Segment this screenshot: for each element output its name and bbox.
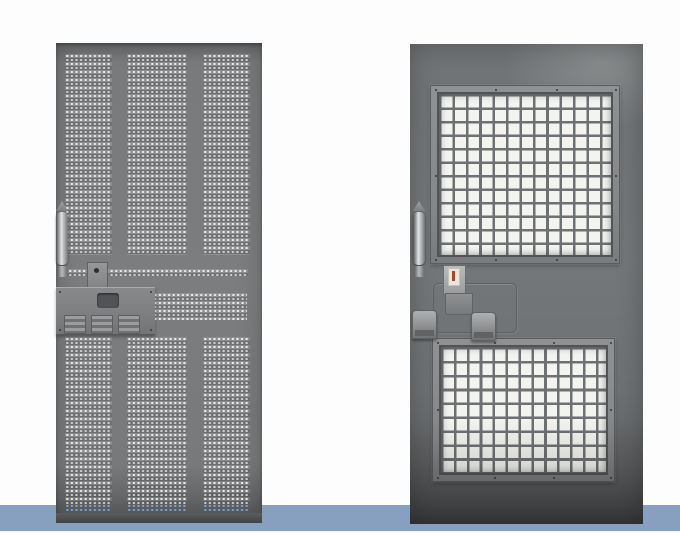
lock-slot-recess bbox=[97, 293, 119, 308]
pull-handle bbox=[56, 201, 72, 281]
perforation-blue-showthrough-right bbox=[203, 504, 250, 513]
door-bottom-edge bbox=[56, 513, 262, 523]
handle-bracket-bottom bbox=[57, 266, 67, 277]
perforated-detention-door bbox=[56, 43, 262, 523]
perforation-blue-showthrough-left bbox=[65, 504, 112, 513]
pull-handle bbox=[413, 201, 429, 281]
handle-grip-bar bbox=[413, 212, 425, 265]
handle-grip-bar bbox=[56, 212, 68, 265]
lock-cover-plate bbox=[56, 287, 155, 335]
spec-label bbox=[448, 268, 460, 286]
perforated-panel-upper-center bbox=[127, 54, 187, 255]
latch-keeper bbox=[118, 315, 140, 334]
perforated-panel-lower-center bbox=[127, 337, 187, 504]
lock-body bbox=[445, 293, 473, 315]
perforation-blue-showthrough-center bbox=[127, 504, 187, 513]
perforated-band-mid-right bbox=[153, 293, 247, 320]
bar-grille-lower bbox=[439, 345, 608, 475]
product-photo-canvas bbox=[0, 0, 680, 534]
handle-bracket-bottom bbox=[414, 266, 424, 277]
plate-screws bbox=[59, 291, 61, 293]
perforated-panel-lower-right bbox=[203, 337, 250, 504]
paddle-latch bbox=[412, 310, 437, 339]
frame-screws bbox=[437, 342, 439, 344]
glazed-detention-door bbox=[410, 44, 643, 524]
keyhole bbox=[94, 268, 99, 273]
vision-panel-lower bbox=[432, 338, 615, 482]
perforated-panel-upper-right bbox=[203, 54, 250, 255]
handle-bracket-top bbox=[413, 201, 425, 211]
latch-keeper bbox=[91, 315, 113, 334]
lock-cylinder bbox=[443, 265, 466, 295]
bar-grille-upper bbox=[437, 92, 613, 257]
frame-screws bbox=[435, 89, 437, 91]
perforated-panel-upper-left bbox=[65, 54, 112, 255]
handle-bracket-top bbox=[56, 201, 68, 211]
paddle-latch bbox=[471, 312, 496, 341]
latch-keeper bbox=[64, 315, 86, 334]
vision-panel-upper bbox=[430, 85, 620, 264]
perforated-panel-lower-left bbox=[65, 337, 112, 504]
